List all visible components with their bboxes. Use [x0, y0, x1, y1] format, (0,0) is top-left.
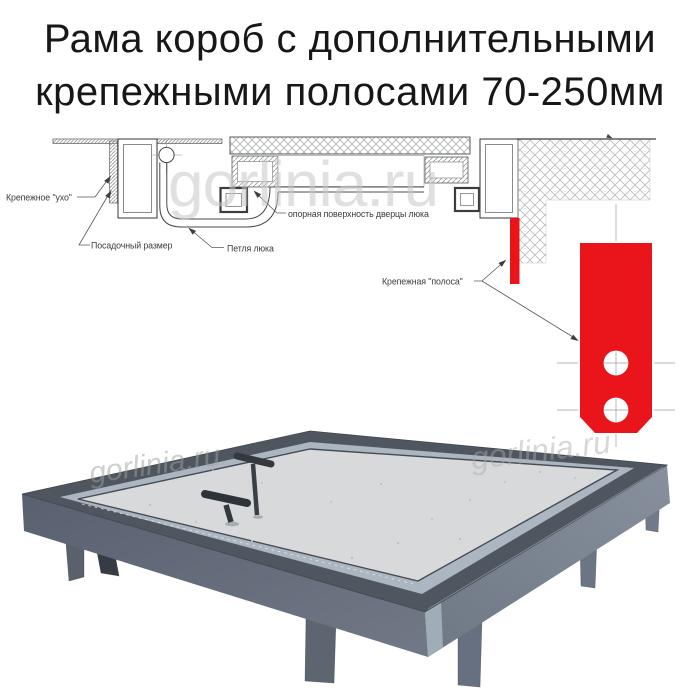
speckle — [469, 499, 471, 501]
speckle — [504, 481, 506, 483]
square-tube-right — [455, 188, 479, 211]
watermark-diagram: gorlinia.ru — [168, 148, 438, 220]
section-drawing: Крепежное "ухо" Посадочный размер Петля … — [6, 134, 675, 447]
label-ear: Крепежное "ухо" — [6, 193, 72, 203]
speckle — [539, 471, 541, 473]
leader-ear — [77, 178, 109, 197]
t-handle-front-shadow — [225, 522, 239, 526]
t-handle-rear-shadow — [253, 515, 263, 519]
speckle — [431, 518, 433, 520]
speckle — [351, 557, 353, 559]
arrow-strip-detail — [570, 335, 580, 344]
speckle — [380, 483, 382, 485]
label-seat-size: Посадочный размер — [91, 241, 173, 251]
page: Рама короб с дополнительными крепежными … — [0, 0, 700, 700]
leader-seat-size — [79, 192, 110, 245]
speckle — [251, 540, 253, 542]
speckle — [261, 482, 263, 484]
label-strip: Крепежная "полоса" — [382, 277, 463, 287]
mounting-strip-red — [510, 218, 520, 284]
photo-leg — [305, 618, 336, 683]
product-illustration: Крепежное "ухо" Посадочный размер Петля … — [0, 0, 700, 700]
speckle — [195, 521, 197, 523]
leader-strip — [474, 262, 577, 340]
speckle — [149, 504, 151, 506]
speckle — [574, 477, 576, 479]
speckle — [300, 555, 302, 557]
mounting-strip-detail — [557, 204, 675, 447]
speckle — [397, 542, 399, 544]
frame-profile-left — [118, 139, 157, 218]
frame-profile-right — [480, 139, 518, 218]
speckle — [330, 501, 332, 503]
speckle — [459, 538, 461, 540]
product-photo: gorlinia.ru gorlinia.ru — [22, 424, 670, 687]
label-hinge: Петля люка — [227, 244, 274, 254]
square-tube-right-outer — [455, 188, 479, 211]
